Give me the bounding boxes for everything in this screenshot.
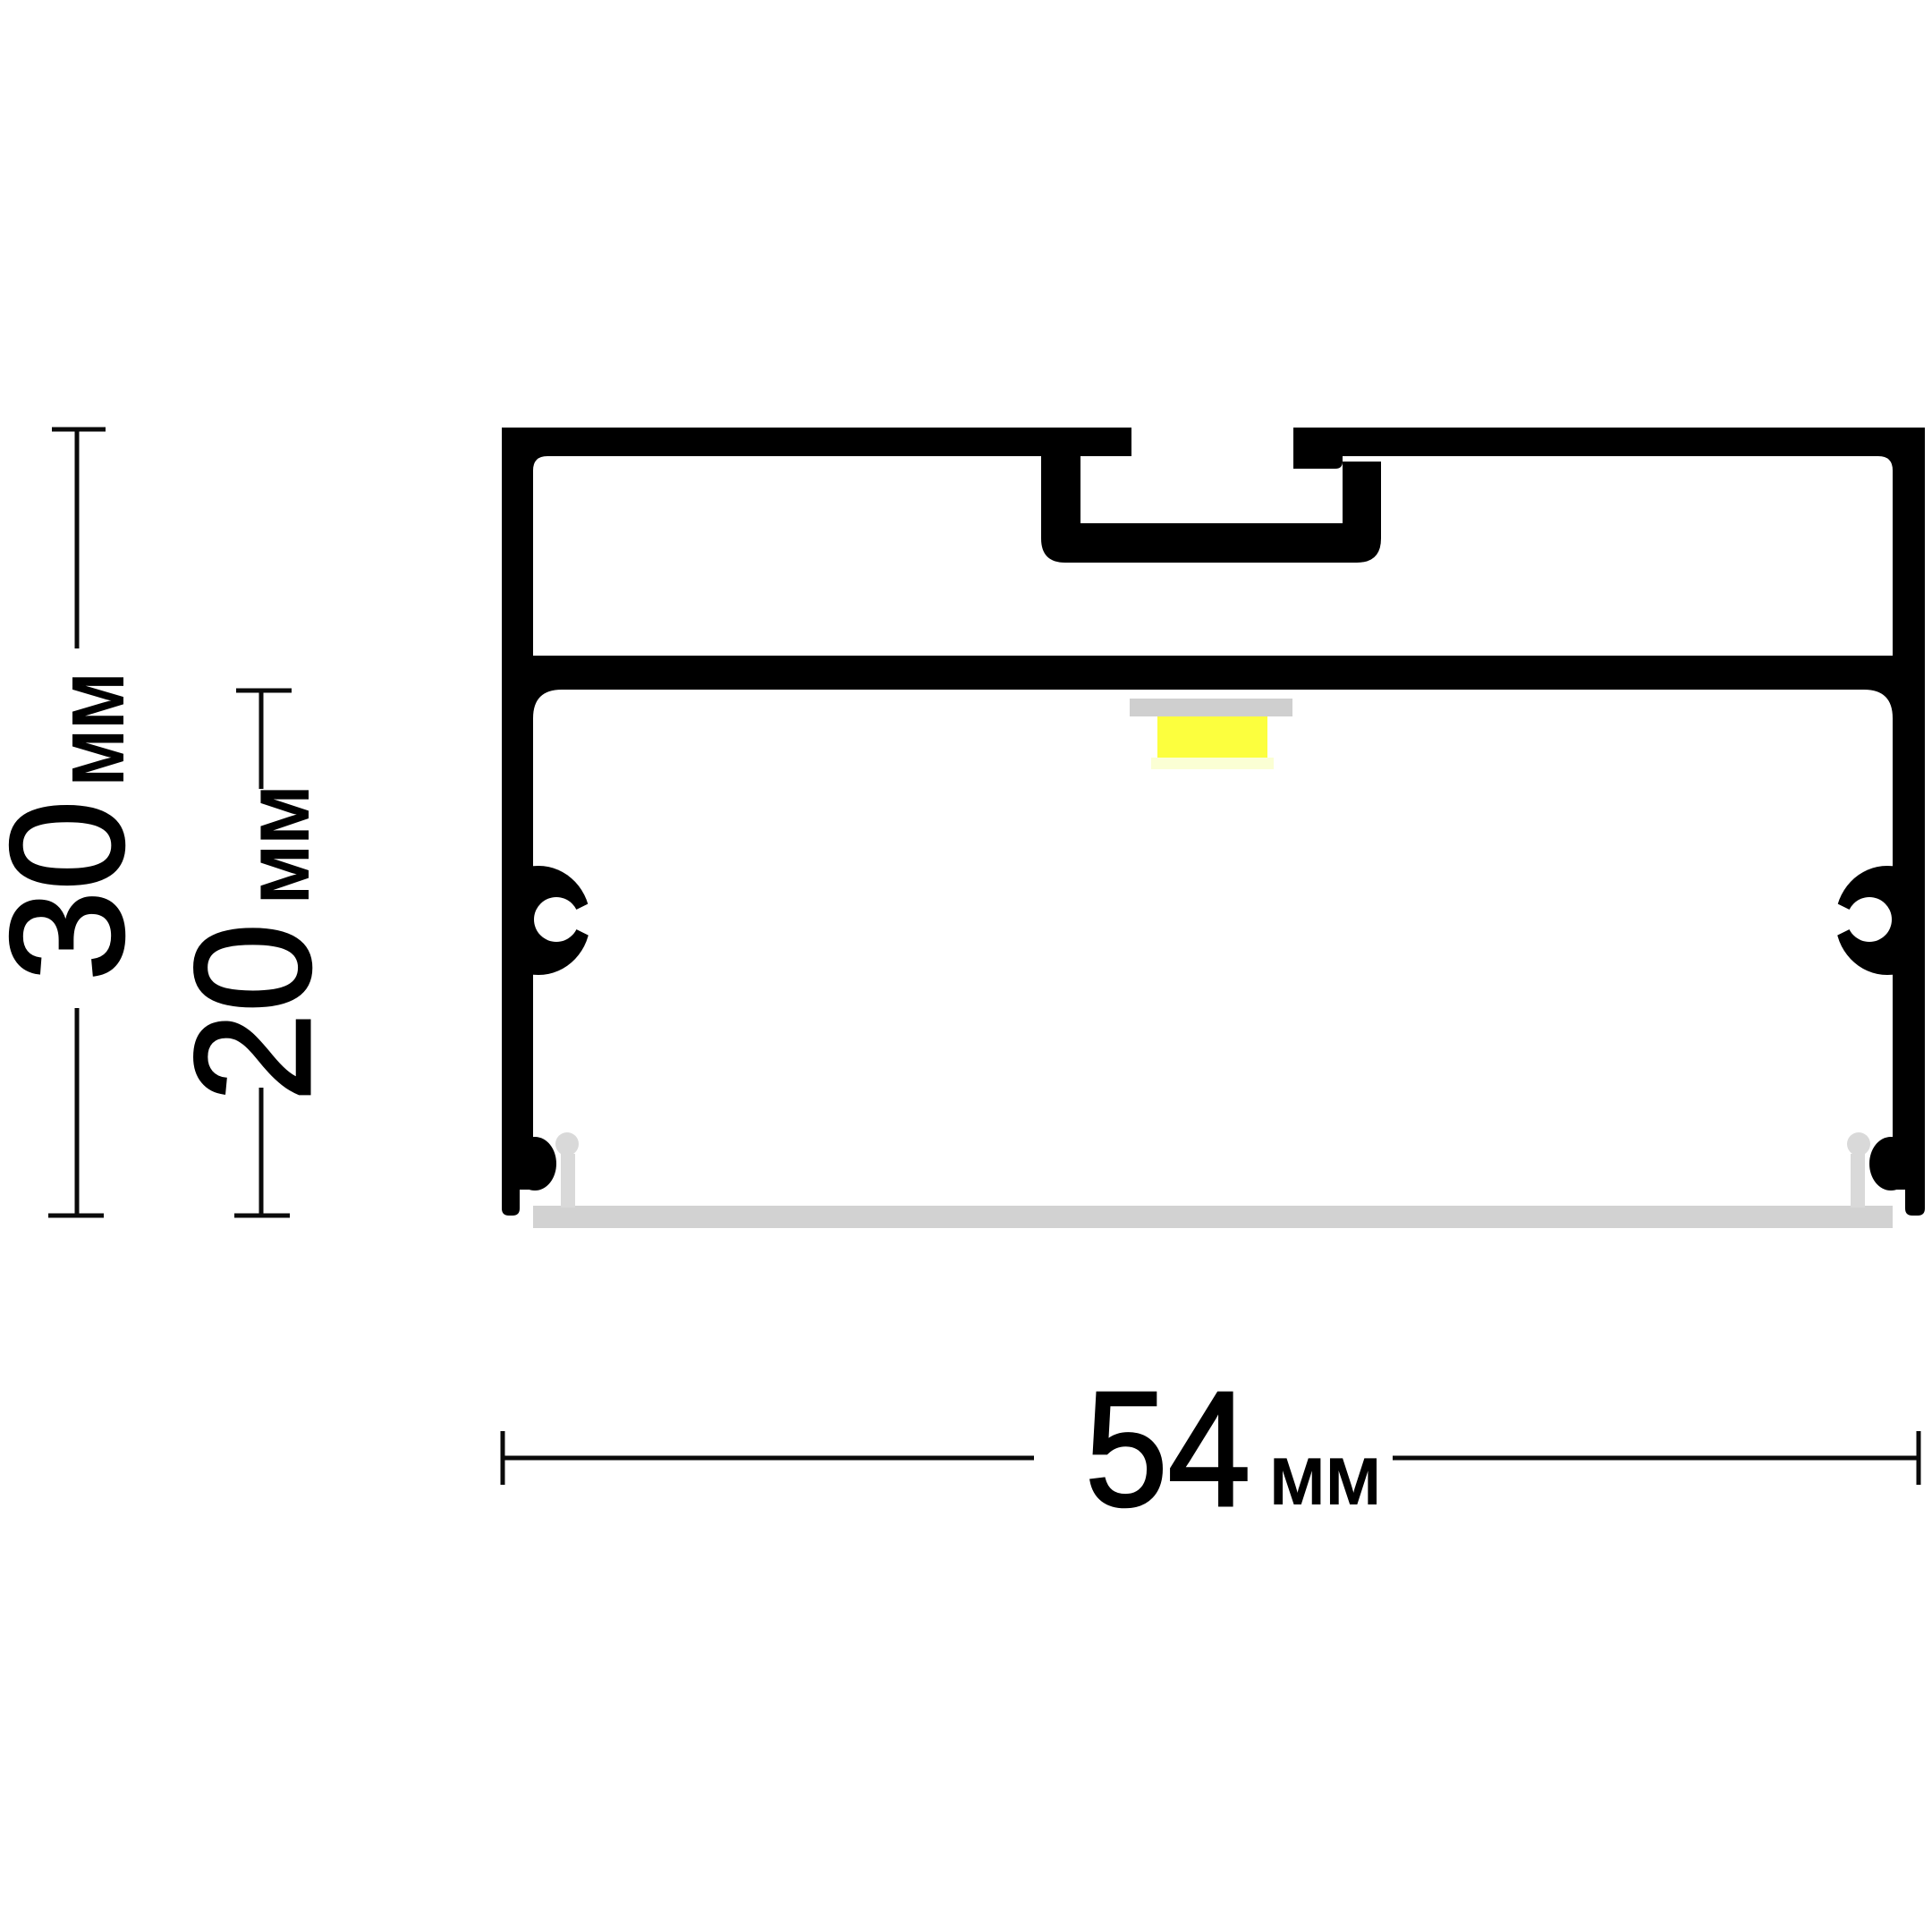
svg-text:мм: мм xyxy=(229,785,326,904)
svg-text:мм: мм xyxy=(1269,1428,1381,1522)
svg-text:54: 54 xyxy=(1085,1359,1250,1541)
svg-text:мм: мм xyxy=(38,673,142,786)
svg-text:20: 20 xyxy=(160,923,344,1102)
svg-text:30: 30 xyxy=(0,800,157,981)
